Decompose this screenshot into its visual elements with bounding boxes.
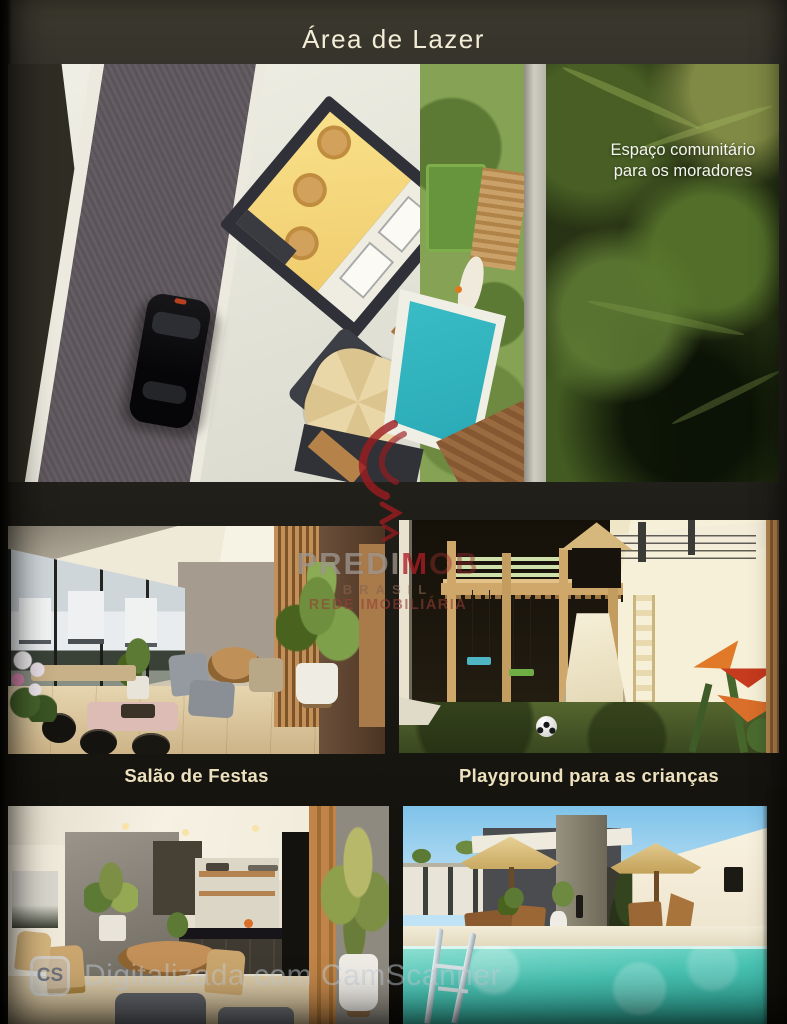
community-green: Espaço comunitário para os moradores	[546, 64, 779, 482]
soccer-ball	[536, 716, 557, 737]
dividing-wall	[524, 64, 546, 482]
orchid	[8, 645, 57, 723]
electric-fence	[612, 529, 756, 562]
playground-image	[399, 520, 779, 753]
scanner-watermark-text: Digitalizada com CamScanner	[84, 959, 501, 993]
hero-annotation: Espaço comunitário para os moradores	[590, 140, 776, 183]
plant	[320, 823, 389, 954]
hero-render-image: Espaço comunitário para os moradores	[8, 64, 779, 482]
annotation-line1: Espaço comunitário	[590, 140, 776, 161]
scanner-watermark: CS Digitalizada com CamScanner	[30, 956, 501, 996]
annotation-line2: para os moradores	[590, 161, 776, 182]
brochure-page: Área de Lazer	[0, 0, 787, 1024]
plant	[276, 562, 359, 671]
caption-playground: Playground para as crianças	[399, 765, 779, 787]
page-title: Área de Lazer	[0, 24, 787, 55]
hedge	[8, 322, 62, 482]
camscanner-icon: CS	[30, 956, 70, 996]
caption-salao: Salão de Festas	[8, 765, 385, 787]
party-hall-image	[8, 526, 385, 754]
